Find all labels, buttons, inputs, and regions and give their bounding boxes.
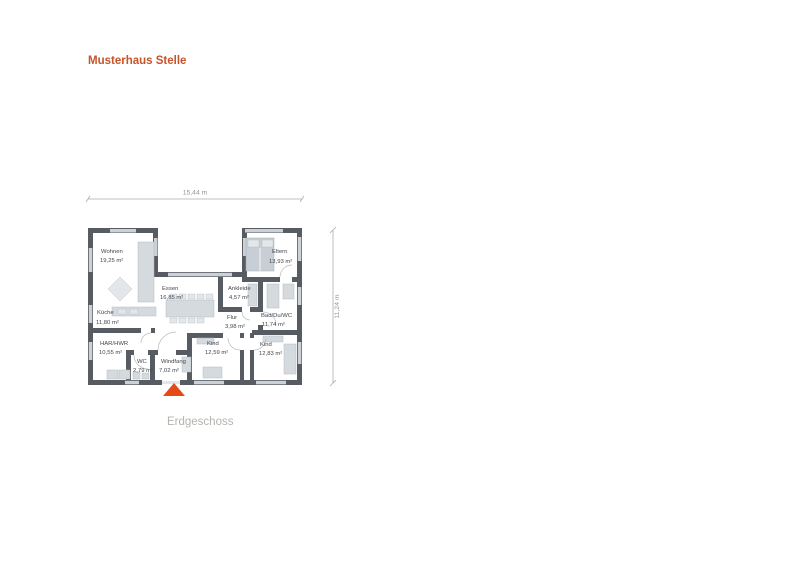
wall-segment (148, 350, 158, 355)
chair (197, 318, 204, 323)
chair (179, 318, 186, 323)
wohnen-rug (108, 277, 132, 301)
kind2-bed (284, 344, 296, 374)
window (298, 342, 302, 364)
window (256, 381, 286, 385)
dimension-width-label: 15,44 m (183, 190, 208, 197)
dimension-height-label: 11,24 m (334, 294, 341, 318)
door-arc (242, 312, 250, 320)
room-label-kueche: Küche (97, 310, 114, 316)
window (154, 238, 158, 256)
room-area-wohnen: 19,25 m² (100, 258, 123, 264)
bed-pillow (248, 240, 259, 247)
window (298, 237, 302, 261)
room-area-kueche: 11,80 m² (96, 320, 119, 326)
room-label-bad: Bad/Du/WC (261, 313, 293, 319)
har-washer (107, 370, 118, 379)
wall-segment (151, 328, 155, 333)
window (110, 229, 136, 233)
chair (170, 318, 177, 323)
window (194, 381, 224, 385)
wall-segment (240, 333, 244, 338)
room-area-essen: 16,85 m² (160, 295, 183, 301)
furniture (107, 238, 296, 379)
wall-segment (250, 350, 254, 380)
wall-segment (218, 307, 242, 312)
bad-shower (267, 284, 279, 308)
wall-segment (242, 277, 280, 282)
floor-plan: 15,44 m 11,24 m (0, 0, 800, 566)
room-area-bad: 11,74 m² (262, 322, 285, 328)
room-area-har-hwr: 10,55 m² (99, 350, 122, 356)
chair (206, 294, 213, 299)
entrance-door (162, 381, 180, 384)
door-arc (228, 338, 240, 350)
chair (197, 294, 204, 299)
kueche-hob (130, 309, 138, 314)
wall-segment (176, 350, 187, 355)
door-arc (141, 333, 151, 343)
room-label-wc: WC (137, 359, 148, 365)
wall-segment (258, 282, 263, 312)
room-area-ankleide: 4,57 m² (229, 295, 249, 301)
door-arc (158, 332, 176, 350)
kind1-bed (203, 367, 222, 378)
wall-segment (252, 330, 302, 335)
chair (188, 294, 195, 299)
room-area-windfang: 7,02 m² (159, 368, 179, 374)
room-label-kind-2: Kind (260, 342, 272, 348)
wall-segment (187, 333, 192, 380)
door-arc (280, 265, 292, 277)
window (89, 248, 93, 272)
terrace-door-window (168, 273, 232, 277)
room-label-flur: Flur (227, 315, 237, 321)
dining-table (166, 300, 214, 317)
window (125, 381, 139, 385)
room-area-wc: 2,79 m² (133, 368, 153, 374)
kueche-sink (118, 309, 126, 314)
room-area-kind-2: 12,83 m² (259, 351, 282, 357)
window (298, 287, 302, 305)
room-label-wohnen: Wohnen (101, 249, 123, 255)
room-label-essen: Essen (162, 286, 178, 292)
chair (188, 318, 195, 323)
wohnen-shelf (138, 242, 154, 302)
wall-segment (93, 328, 141, 333)
wall-segment (292, 277, 302, 282)
dimension-right: 11,24 m (330, 227, 341, 386)
room-label-har-hwr: HAR/HWR (100, 341, 128, 347)
room-area-eltern: 13,93 m² (269, 259, 292, 265)
floor-label: Erdgeschoss (167, 416, 233, 428)
window (245, 229, 283, 233)
room-area-kind-1: 12,59 m² (205, 350, 228, 356)
wall-segment (187, 333, 223, 338)
dimension-top: 15,44 m (86, 190, 304, 203)
window (89, 342, 93, 360)
room-label-windfang: Windfang (161, 359, 186, 365)
room-label-ankleide: Ankleide (228, 286, 251, 292)
room-label-kind-1: Kind (207, 341, 219, 347)
wall-segment (250, 333, 254, 338)
har-dryer (119, 370, 130, 379)
room-label-eltern: Eltern (272, 249, 287, 255)
bed-pillow (262, 240, 273, 247)
bad-vanity (283, 284, 294, 299)
room-area-flur: 3,98 m² (225, 324, 245, 330)
wall-segment (240, 350, 244, 380)
wall-segment (218, 277, 223, 312)
window (89, 305, 93, 323)
